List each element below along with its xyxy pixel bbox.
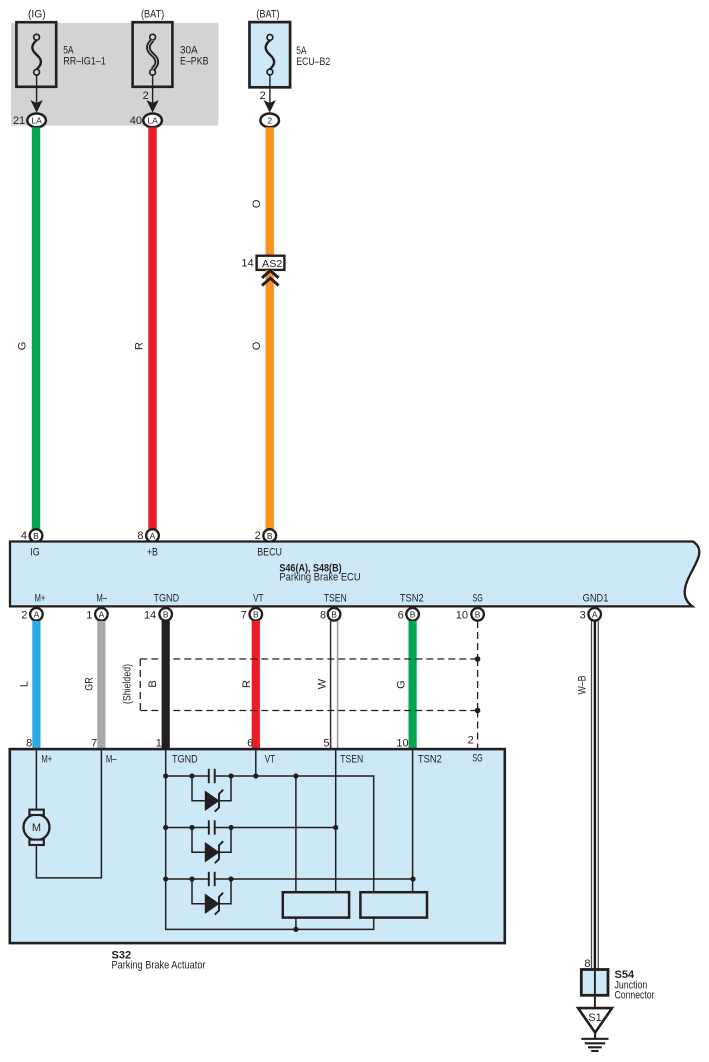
svg-text:(IG): (IG) (28, 9, 46, 21)
svg-text:40: 40 (130, 115, 142, 127)
svg-text:(BAT): (BAT) (256, 9, 279, 21)
svg-text:G: G (16, 342, 28, 351)
svg-text:(Shielded): (Shielded) (121, 664, 133, 704)
svg-text:A: A (150, 531, 156, 541)
svg-text:(BAT): (BAT) (141, 9, 164, 21)
svg-text:B: B (331, 610, 337, 620)
svg-text:R: R (133, 342, 145, 350)
svg-text:4: 4 (21, 530, 27, 542)
svg-text:2: 2 (143, 90, 149, 102)
svg-text:B: B (147, 680, 159, 687)
svg-text:B: B (33, 531, 39, 541)
svg-text:B: B (163, 610, 169, 620)
svg-text:E–PKB: E–PKB (180, 55, 209, 67)
svg-text:B: B (267, 531, 273, 541)
svg-text:Connector: Connector (615, 989, 655, 1001)
svg-text:Parking Brake ECU: Parking Brake ECU (279, 572, 360, 584)
svg-text:W: W (317, 678, 329, 689)
svg-text:ECU–B2: ECU–B2 (296, 56, 330, 68)
svg-text:B: B (410, 610, 416, 620)
svg-text:TSEN: TSEN (340, 754, 363, 766)
svg-text:BECU: BECU (257, 547, 282, 559)
svg-text:GR: GR (84, 677, 96, 691)
svg-text:B: B (253, 610, 259, 620)
svg-text:M+: M+ (42, 754, 53, 766)
svg-text:VT: VT (265, 754, 276, 766)
svg-text:TSN2: TSN2 (418, 754, 442, 766)
svg-text:21: 21 (13, 115, 25, 127)
svg-text:TGND: TGND (172, 754, 198, 766)
svg-text:+B: +B (147, 547, 158, 559)
svg-text:14: 14 (241, 257, 253, 269)
svg-text:IG: IG (30, 547, 40, 559)
svg-text:Parking Brake Actuator: Parking Brake Actuator (112, 959, 206, 971)
svg-text:2: 2 (468, 735, 474, 747)
svg-text:7: 7 (241, 609, 247, 621)
svg-text:TSEN: TSEN (324, 593, 347, 605)
svg-text:B: B (475, 610, 481, 620)
svg-text:R: R (241, 680, 253, 688)
svg-text:S1: S1 (588, 1012, 601, 1024)
svg-text:SG: SG (472, 593, 482, 605)
svg-text:LA: LA (31, 116, 42, 126)
svg-text:LA: LA (147, 116, 158, 126)
svg-text:M–: M– (106, 754, 117, 766)
svg-text:A: A (592, 610, 598, 620)
svg-text:VT: VT (253, 593, 264, 605)
svg-text:1: 1 (86, 609, 92, 621)
svg-text:A: A (99, 610, 105, 620)
svg-text:GND1: GND1 (583, 593, 609, 605)
svg-text:O: O (251, 341, 263, 350)
svg-text:M+: M+ (35, 593, 46, 605)
svg-text:O: O (251, 199, 263, 208)
svg-text:14: 14 (144, 609, 156, 621)
svg-text:RR–IG1–1: RR–IG1–1 (63, 55, 106, 67)
svg-text:2: 2 (255, 530, 261, 542)
svg-text:6: 6 (398, 609, 404, 621)
svg-text:L: L (18, 681, 30, 687)
svg-text:M–: M– (96, 593, 107, 605)
svg-text:M: M (32, 822, 41, 834)
svg-text:TGND: TGND (153, 593, 179, 605)
svg-text:G: G (396, 680, 408, 689)
svg-text:3: 3 (580, 609, 586, 621)
svg-text:2: 2 (267, 116, 272, 126)
svg-text:2: 2 (260, 90, 266, 102)
svg-text:W–B: W–B (576, 676, 588, 695)
svg-text:A: A (34, 610, 40, 620)
svg-text:TSN2: TSN2 (400, 593, 424, 605)
svg-text:8: 8 (137, 530, 143, 542)
svg-text:8: 8 (320, 609, 326, 621)
svg-text:2: 2 (21, 609, 27, 621)
svg-text:SG: SG (472, 753, 482, 765)
svg-text:AS2: AS2 (262, 259, 283, 270)
svg-text:10: 10 (456, 609, 468, 621)
